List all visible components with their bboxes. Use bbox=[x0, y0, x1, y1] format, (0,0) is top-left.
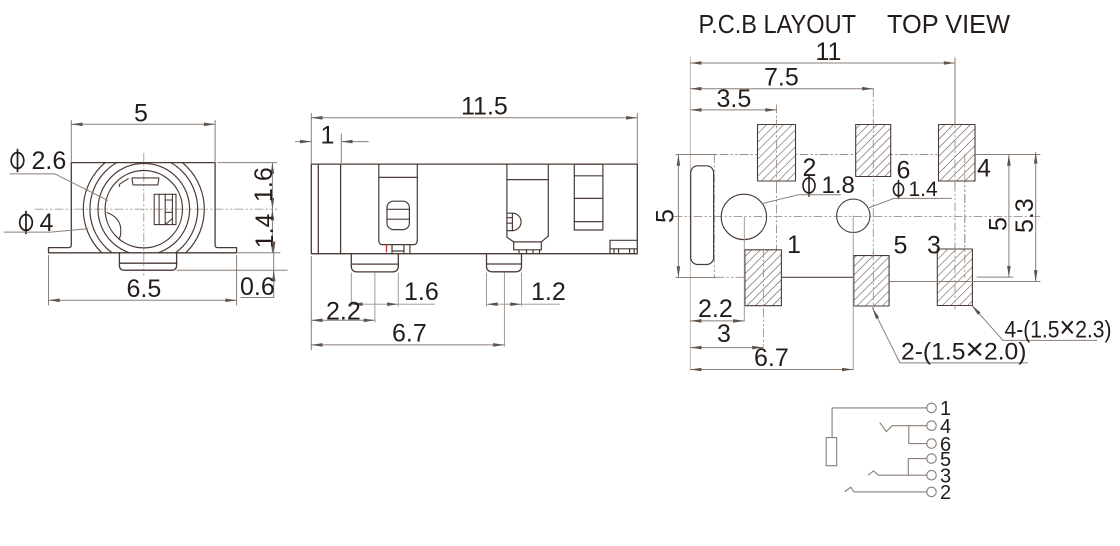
svg-text:11: 11 bbox=[816, 38, 842, 66]
svg-text:0.6: 0.6 bbox=[240, 273, 275, 301]
svg-text:1.2: 1.2 bbox=[531, 278, 566, 306]
svg-text:3: 3 bbox=[927, 232, 941, 260]
svg-text:5: 5 bbox=[134, 100, 148, 128]
svg-text:6.5: 6.5 bbox=[127, 275, 162, 303]
svg-text:TOP VIEW: TOP VIEW bbox=[887, 9, 1010, 39]
svg-text:1.6: 1.6 bbox=[404, 278, 439, 306]
svg-text:5.3: 5.3 bbox=[1011, 198, 1039, 233]
svg-text:4-(1.5×2.3): 4-(1.5×2.3) bbox=[1005, 310, 1112, 345]
svg-text:5: 5 bbox=[894, 232, 908, 260]
svg-text:1: 1 bbox=[787, 231, 801, 259]
svg-text:1: 1 bbox=[321, 122, 335, 150]
svg-text:6.7: 6.7 bbox=[392, 320, 427, 348]
svg-text:4: 4 bbox=[40, 209, 54, 237]
svg-text:4: 4 bbox=[977, 155, 991, 183]
svg-text:1.4: 1.4 bbox=[909, 178, 939, 201]
svg-text:2.2: 2.2 bbox=[326, 298, 361, 326]
svg-text:1.6: 1.6 bbox=[250, 167, 278, 202]
svg-text:2.2: 2.2 bbox=[698, 295, 733, 323]
svg-text:1.4: 1.4 bbox=[251, 213, 279, 248]
svg-text:3.5: 3.5 bbox=[717, 85, 752, 113]
svg-text:5: 5 bbox=[985, 217, 1013, 231]
svg-text:2: 2 bbox=[940, 482, 951, 504]
svg-text:P.C.B LAYOUT: P.C.B LAYOUT bbox=[699, 9, 857, 39]
svg-text:2.6: 2.6 bbox=[32, 147, 67, 175]
svg-text:5: 5 bbox=[652, 209, 680, 223]
svg-text:7.5: 7.5 bbox=[764, 64, 799, 92]
svg-text:3: 3 bbox=[717, 320, 731, 348]
svg-text:6.7: 6.7 bbox=[754, 344, 789, 372]
svg-text:11.5: 11.5 bbox=[461, 93, 508, 121]
